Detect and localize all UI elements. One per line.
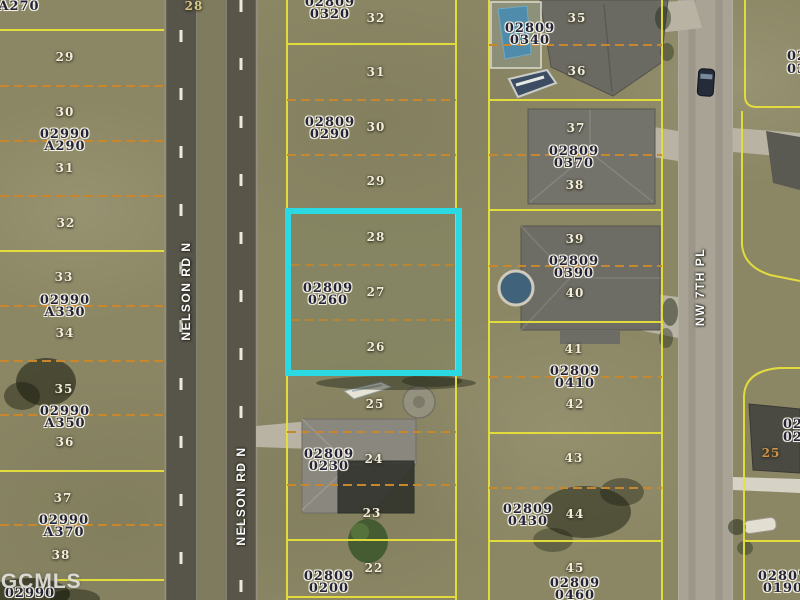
house-roof (766, 131, 800, 190)
lot-number: 38 (566, 178, 585, 192)
parcel-id-label: 02809 0430 (503, 504, 553, 528)
lot-number: 38 (52, 548, 71, 562)
parcel-id-label: 02809 0370 (549, 146, 599, 170)
parcel-id-line2: A370 (39, 527, 89, 539)
parcel-id-label: 02990 A370 (39, 515, 89, 539)
road-label-nelson-rd-n: NELSON RD N (179, 241, 193, 340)
lot-number: 45 (566, 561, 585, 575)
lot-number: 33 (55, 270, 74, 284)
map-graphics-layer (0, 0, 800, 600)
lot-number: 40 (566, 286, 585, 300)
parcel-id-line2: 0390 (549, 268, 599, 280)
lot-number: 31 (56, 161, 75, 175)
parcel-id-label: 02809 0410 (550, 366, 600, 390)
aerial-parcel-map: A270 28 29 30 31 32 33 34 35 36 37 38 02… (0, 0, 800, 600)
lot-number: 23 (363, 506, 382, 520)
lot-number: 28 (185, 0, 204, 13)
parcel-id-line2: 0200 (304, 583, 354, 595)
parcel-id-label: 02990 A290 (40, 129, 90, 153)
lot-number: 37 (567, 121, 586, 135)
parcel-id-label: A270 (0, 1, 40, 13)
parcel-id-line2: 0320 (305, 9, 355, 21)
lot-number: 35 (55, 382, 74, 396)
boat (743, 517, 776, 534)
lot-number: 32 (367, 11, 386, 25)
mls-watermark-text: FGCMLS (0, 570, 82, 594)
car (697, 68, 715, 96)
round-pool (499, 271, 533, 305)
lot-number: 34 (56, 326, 75, 340)
parcel-id-line2: 0260 (303, 295, 353, 307)
parcel-id-label-partial: 02 (783, 432, 800, 444)
parcel-id-line2: 0370 (549, 158, 599, 170)
lot-number: 44 (566, 507, 585, 521)
house-roof (540, 0, 668, 96)
parcel-id-label: 02807 0190 (758, 571, 800, 595)
lot-number: 43 (565, 451, 584, 465)
lot-number: 41 (565, 342, 584, 356)
parcel-id-label: 02809 0230 (304, 449, 354, 473)
lot-number: 25 (366, 397, 385, 411)
parcel-id-label-partial: 03 (787, 64, 800, 76)
parcel-id-label: 02809 0200 (304, 571, 354, 595)
parcel-id-label: 02990 A330 (40, 295, 90, 319)
lot-number: 24 (365, 452, 384, 466)
road-label-nelson-rd-n: NELSON RD N (234, 446, 248, 545)
parcel-id-line2: 0290 (305, 129, 355, 141)
lot-number: 42 (566, 397, 585, 411)
parcel-id-label: 02809 0460 (550, 578, 600, 600)
lot-number: 36 (56, 435, 75, 449)
lot-number: 22 (365, 561, 384, 575)
parcel-id-line2: 0460 (550, 590, 600, 600)
road-label-nw-7th-pl: NW 7TH PL (693, 248, 707, 326)
parcel-id-label: 02809 0340 (505, 23, 555, 47)
parcel-id-line2: 0430 (503, 516, 553, 528)
parcel-id-line2: A330 (40, 307, 90, 319)
subject-parcel-id-label: 02809 0260 (303, 283, 353, 307)
lot-number: 37 (54, 491, 73, 505)
lot-number: 31 (367, 65, 386, 79)
lot-number: 35 (568, 11, 587, 25)
parcel-id-label: 02809 0320 (305, 0, 355, 21)
lot-number: 29 (56, 50, 75, 64)
lot-number: 27 (367, 285, 386, 299)
parcel-id-line2: 0340 (505, 35, 555, 47)
lot-number: 36 (568, 64, 587, 78)
parcel-id-label: 02809 0390 (549, 256, 599, 280)
parcel-id-line2: A290 (40, 141, 90, 153)
parcel-id-line2: 0410 (550, 378, 600, 390)
parcel-id-label: 02990 A350 (40, 406, 90, 430)
parcel-id-line2: 0190 (758, 583, 800, 595)
lot-number: 28 (367, 230, 386, 244)
lot-number: 30 (367, 120, 386, 134)
lot-number: 29 (367, 174, 386, 188)
parcel-id-line2: A350 (40, 418, 90, 430)
lot-number: 26 (367, 340, 386, 354)
lot-number: 30 (56, 105, 75, 119)
parcel-id-line2: 0230 (304, 461, 354, 473)
lot-number: 25 (762, 446, 781, 460)
parcel-id-label: 02809 0290 (305, 117, 355, 141)
lot-number: 39 (566, 232, 585, 246)
lot-number: 32 (57, 216, 76, 230)
